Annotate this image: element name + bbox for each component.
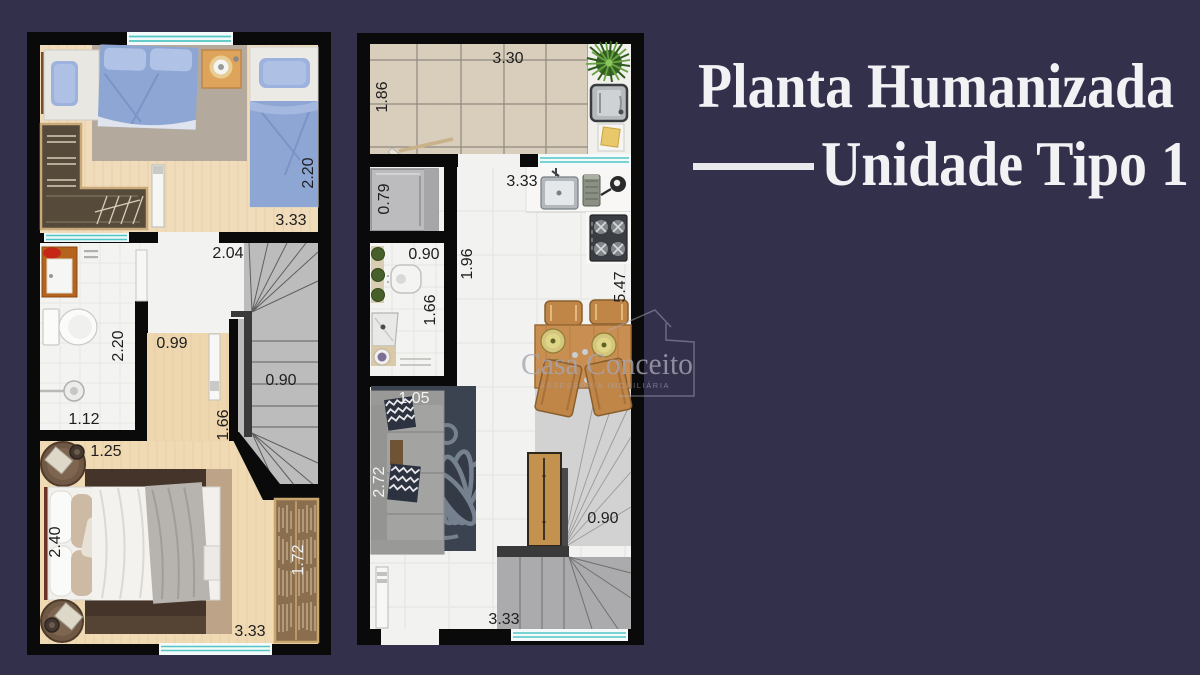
svg-text:1.66: 1.66	[422, 294, 439, 325]
svg-text:2.04: 2.04	[212, 245, 243, 262]
svg-text:0.79: 0.79	[376, 183, 393, 214]
svg-text:1.05: 1.05	[398, 390, 429, 407]
svg-text:1.12: 1.12	[68, 411, 99, 428]
svg-text:Planta Humanizada: Planta Humanizada	[698, 50, 1174, 121]
svg-text:1.66: 1.66	[215, 409, 232, 440]
svg-text:Unidade Tipo 1: Unidade Tipo 1	[821, 128, 1189, 199]
svg-text:Casa Conceito: Casa Conceito	[521, 346, 693, 381]
svg-text:0.90: 0.90	[265, 372, 296, 389]
svg-text:3.33: 3.33	[275, 212, 306, 229]
svg-text:3.33: 3.33	[506, 173, 537, 190]
svg-text:3.33: 3.33	[488, 611, 519, 628]
svg-text:0.90: 0.90	[587, 510, 618, 527]
svg-text:0.90: 0.90	[408, 246, 439, 263]
svg-text:ASSESSORIA IMOBILIÁRIA: ASSESSORIA IMOBILIÁRIA	[540, 381, 670, 390]
svg-text:1.72: 1.72	[290, 544, 307, 575]
svg-text:0.99: 0.99	[156, 335, 187, 352]
svg-text:3.33: 3.33	[234, 623, 265, 640]
svg-text:2.72: 2.72	[371, 466, 388, 497]
svg-text:3.30: 3.30	[492, 50, 523, 67]
svg-text:1.86: 1.86	[374, 81, 391, 112]
svg-text:1.96: 1.96	[459, 248, 476, 279]
svg-text:2.20: 2.20	[110, 330, 127, 361]
svg-text:2.40: 2.40	[47, 526, 64, 557]
svg-text:5.47: 5.47	[612, 271, 629, 302]
svg-text:2.20: 2.20	[300, 157, 317, 188]
svg-text:1.25: 1.25	[90, 443, 121, 460]
